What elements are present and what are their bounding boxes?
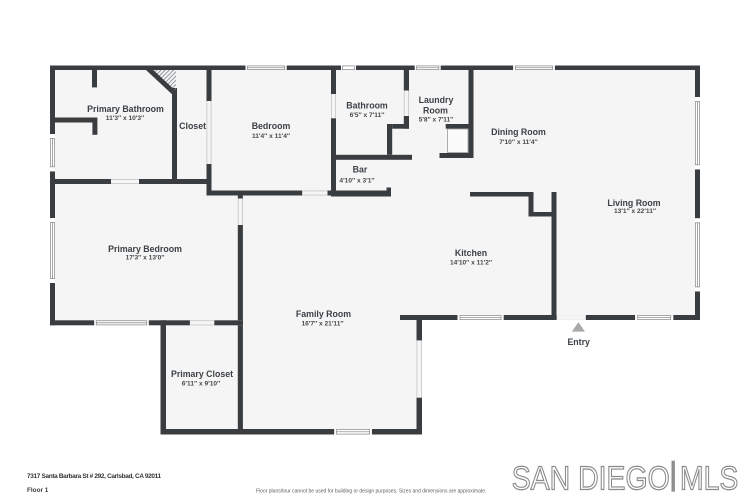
svg-text:Family Room: Family Room	[296, 309, 351, 319]
svg-text:Kitchen: Kitchen	[455, 248, 487, 258]
svg-text:Bathroom: Bathroom	[346, 101, 388, 111]
svg-text:7′10″ x 11′4″: 7′10″ x 11′4″	[499, 139, 538, 146]
svg-text:Primary Bathroom: Primary Bathroom	[87, 104, 164, 114]
svg-text:16′7″ x 21′11″: 16′7″ x 21′11″	[301, 321, 344, 328]
svg-text:Room: Room	[423, 106, 448, 116]
svg-text:SAN DIEGO: SAN DIEGO	[512, 459, 670, 496]
svg-text:Primary Bedroom: Primary Bedroom	[108, 244, 182, 254]
svg-text:MLS: MLS	[680, 459, 738, 497]
svg-text:Floor 1: Floor 1	[27, 487, 49, 494]
svg-text:6′11″ x 9′10″: 6′11″ x 9′10″	[182, 381, 221, 388]
svg-text:13′1″ x 22′11″: 13′1″ x 22′11″	[614, 208, 657, 215]
svg-text:6′5″ x 7′11″: 6′5″ x 7′11″	[350, 112, 386, 119]
svg-text:4′10″ x 3′1″: 4′10″ x 3′1″	[339, 178, 375, 185]
svg-text:Bedroom: Bedroom	[252, 121, 291, 131]
svg-text:Closet: Closet	[179, 121, 206, 131]
svg-text:Living Room: Living Room	[607, 198, 660, 208]
svg-text:17′3″ x 13′0″: 17′3″ x 13′0″	[126, 255, 166, 262]
svg-text:Entry: Entry	[567, 337, 590, 347]
svg-text:5′8″ x 7′11″: 5′8″ x 7′11″	[419, 117, 455, 124]
svg-text:Dining Room: Dining Room	[491, 127, 546, 137]
svg-text:7317 Santa Barbara St # 292, C: 7317 Santa Barbara St # 292, Carlsbad, C…	[27, 473, 162, 480]
svg-text:11′3″ x 10′3″: 11′3″ x 10′3″	[106, 115, 145, 122]
svg-text:14′10″ x 11′2″: 14′10″ x 11′2″	[450, 260, 493, 267]
svg-text:Laundry: Laundry	[419, 95, 454, 105]
svg-text:Bar: Bar	[353, 165, 368, 175]
svg-text:11′4″ x 11′4″: 11′4″ x 11′4″	[252, 133, 291, 140]
svg-text:Floor plans/tour cannot be use: Floor plans/tour cannot be used for buil…	[256, 489, 486, 495]
svg-text:Primary Closet: Primary Closet	[171, 369, 233, 379]
